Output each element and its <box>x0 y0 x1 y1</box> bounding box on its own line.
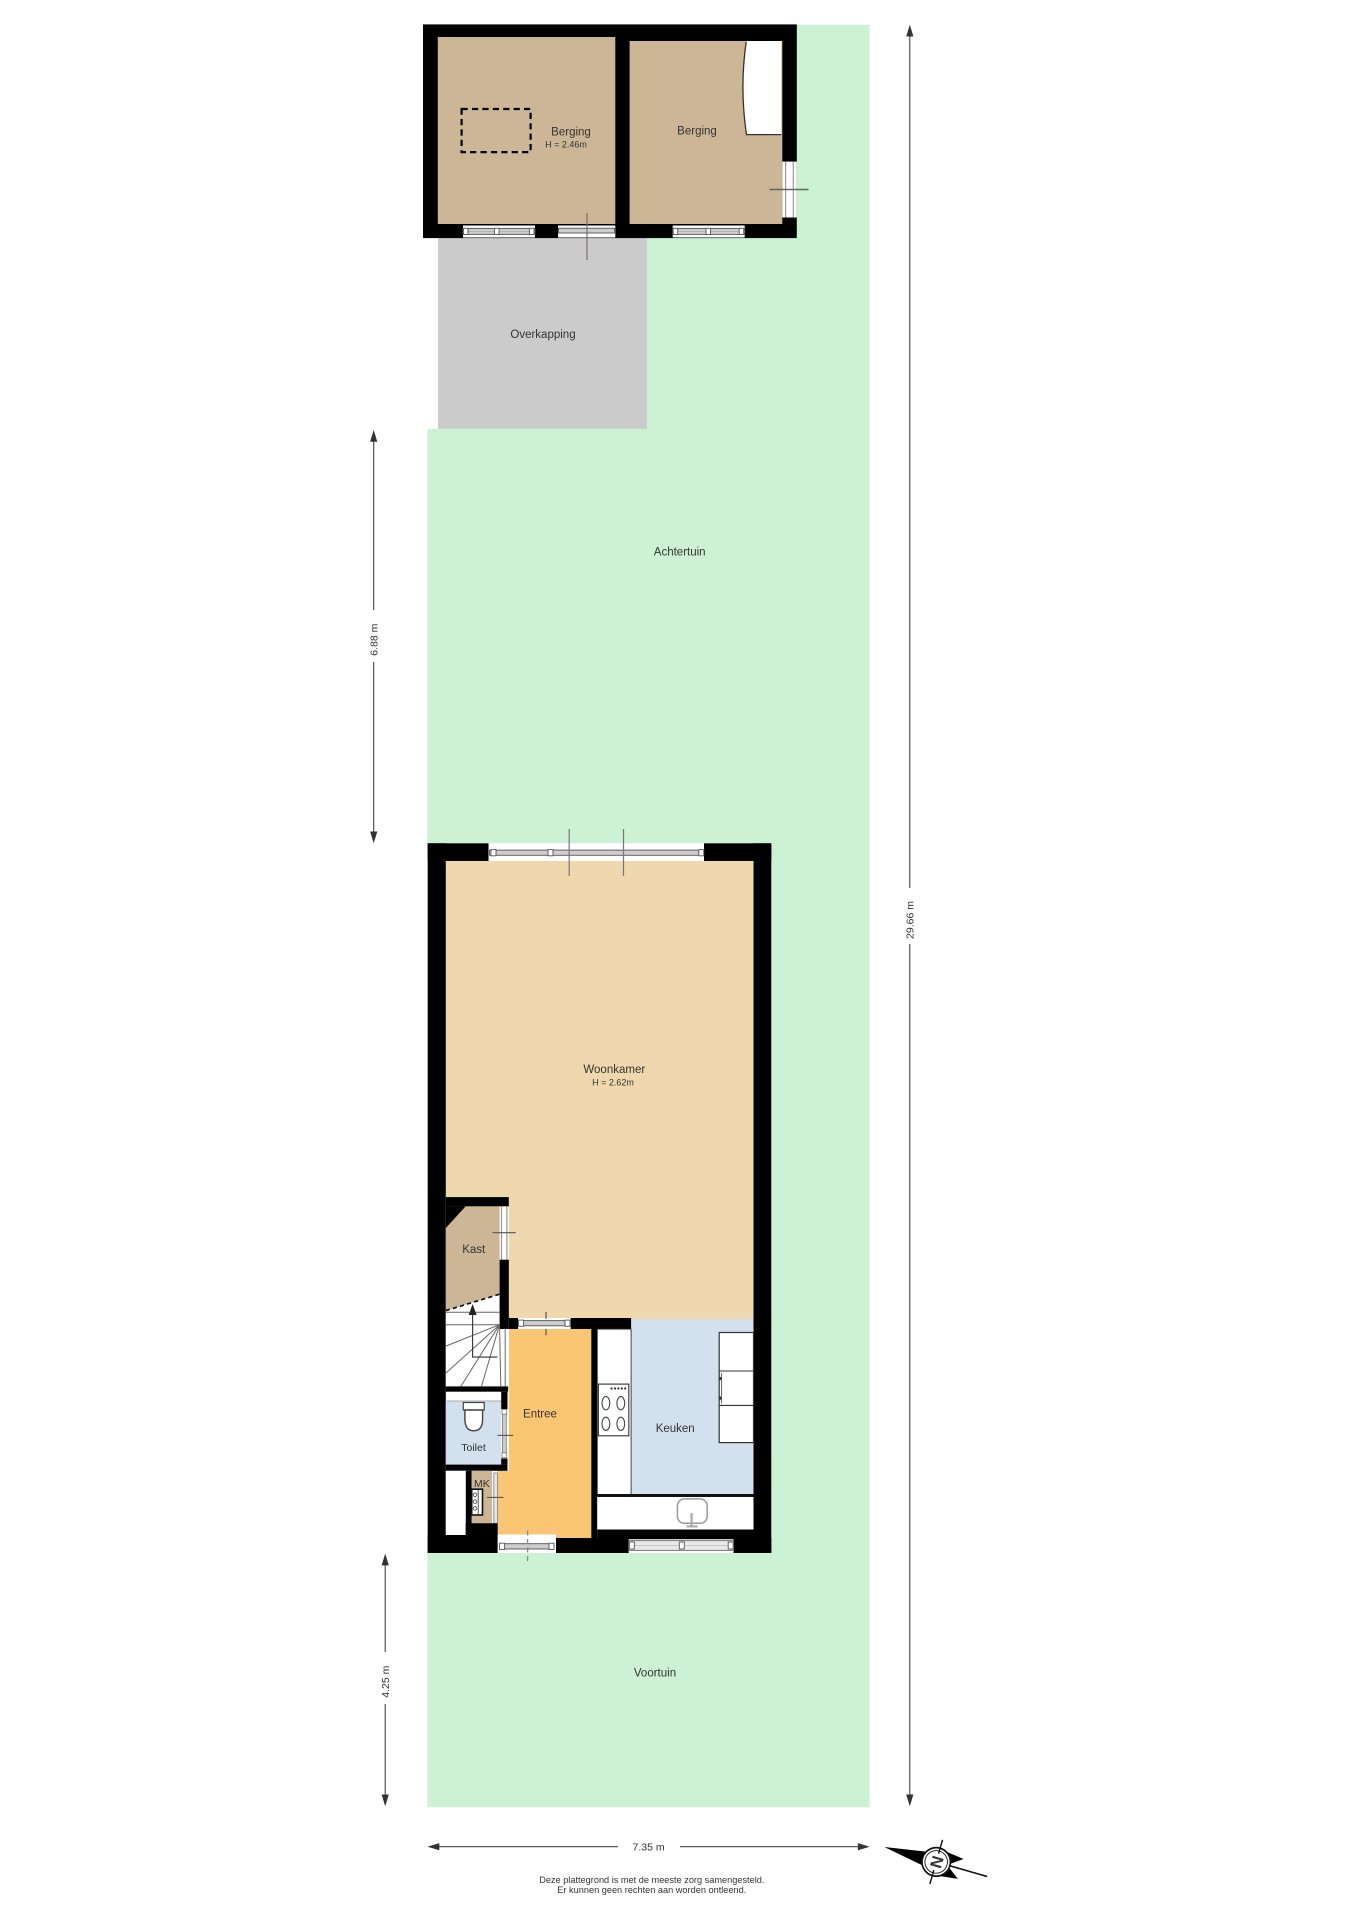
svg-text:7.35 m: 7.35 m <box>633 1841 665 1853</box>
svg-text:Overkapping: Overkapping <box>510 329 575 341</box>
svg-text:Achtertuin: Achtertuin <box>654 546 706 558</box>
svg-text:Toilet: Toilet <box>461 1442 486 1454</box>
svg-text:Deze plattegrond is met de mee: Deze plattegrond is met de meeste zorg s… <box>539 1875 764 1885</box>
svg-text:Berging: Berging <box>551 126 591 138</box>
svg-text:Kast: Kast <box>462 1244 486 1256</box>
svg-text:H = 2.62m: H = 2.62m <box>592 1077 634 1087</box>
svg-text:4.25 m: 4.25 m <box>380 1665 392 1697</box>
svg-text:Berging: Berging <box>677 125 717 137</box>
svg-text:Voortuin: Voortuin <box>634 1668 676 1680</box>
svg-text:Er kunnen geen rechten aan wor: Er kunnen geen rechten aan worden ontlee… <box>557 1885 746 1895</box>
svg-text:H = 2.46m: H = 2.46m <box>545 139 587 149</box>
svg-text:Woonkamer: Woonkamer <box>583 1064 645 1076</box>
svg-text:29.66 m: 29.66 m <box>905 901 917 939</box>
svg-text:Keuken: Keuken <box>656 1423 695 1435</box>
svg-text:MK: MK <box>474 1478 490 1490</box>
svg-text:6.88 m: 6.88 m <box>368 623 380 655</box>
svg-text:Entree: Entree <box>523 1408 557 1420</box>
